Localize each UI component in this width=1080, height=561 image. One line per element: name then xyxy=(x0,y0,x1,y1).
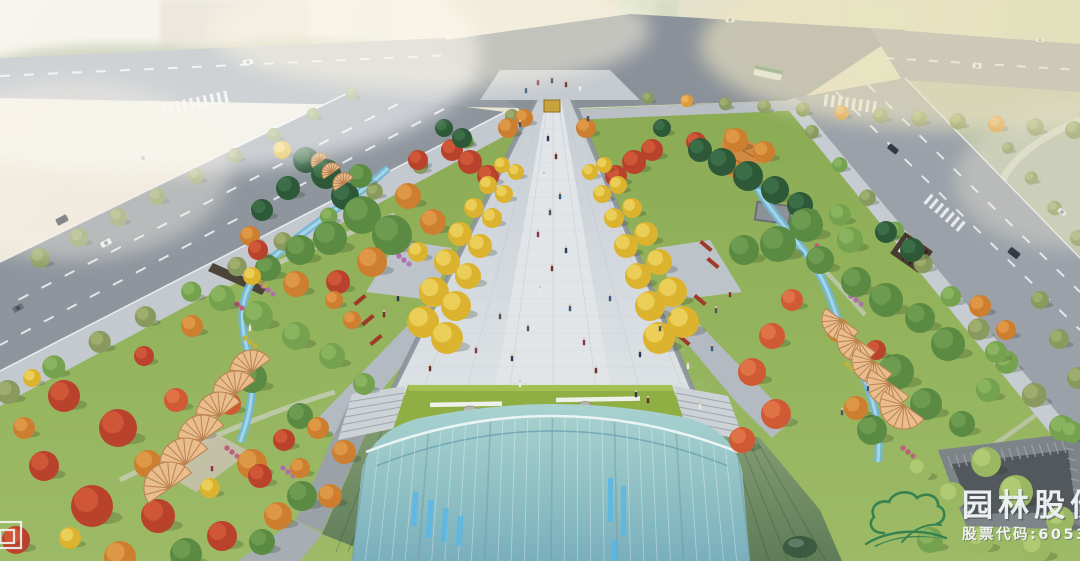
pedestrian xyxy=(841,410,843,415)
rendering-canvas: 园林股份 园林股份 股票代码:605303 股票代码:605303 xyxy=(0,0,1080,561)
pedestrian xyxy=(635,392,637,397)
pedestrian xyxy=(559,194,561,199)
pedestrian xyxy=(475,348,477,353)
pedestrian xyxy=(549,210,551,215)
pedestrian xyxy=(525,88,527,93)
pedestrian xyxy=(429,366,431,371)
pedestrian xyxy=(711,346,713,351)
pedestrian xyxy=(537,232,539,237)
pedestrian xyxy=(699,404,701,409)
pedestrian xyxy=(565,82,567,87)
pedestrian xyxy=(583,340,585,345)
pedestrian xyxy=(547,136,549,141)
pedestrian xyxy=(539,288,541,293)
pedestrian xyxy=(867,386,869,391)
pedestrian xyxy=(729,292,731,297)
pedestrian xyxy=(579,86,581,91)
pedestrian xyxy=(587,116,589,121)
pedestrian xyxy=(565,248,567,253)
pedestrian xyxy=(555,154,557,159)
entry-pavilion xyxy=(544,100,560,112)
park-rendering: 园林股份 园林股份 股票代码:605303 股票代码:605303 xyxy=(0,0,1080,561)
pedestrian xyxy=(527,326,529,331)
pedestrian xyxy=(543,174,545,179)
pedestrian xyxy=(499,314,501,319)
pedestrian xyxy=(595,368,597,373)
pedestrian xyxy=(249,326,251,331)
watermark-code: 股票代码:605303 xyxy=(962,525,1080,543)
pedestrian xyxy=(715,308,717,313)
pedestrian xyxy=(647,398,649,403)
watermark-title: 园林股份 xyxy=(962,488,1080,524)
pedestrian xyxy=(383,312,385,317)
pedestrian xyxy=(687,364,689,369)
pedestrian xyxy=(519,122,521,127)
pedestrian xyxy=(551,266,553,271)
pedestrian xyxy=(639,352,641,357)
pedestrian xyxy=(397,296,399,301)
pedestrian xyxy=(211,466,213,471)
pedestrian xyxy=(659,326,661,331)
pedestrian xyxy=(519,382,521,387)
pedestrian xyxy=(511,356,513,361)
pedestrian xyxy=(609,296,611,301)
pedestrian xyxy=(569,306,571,311)
